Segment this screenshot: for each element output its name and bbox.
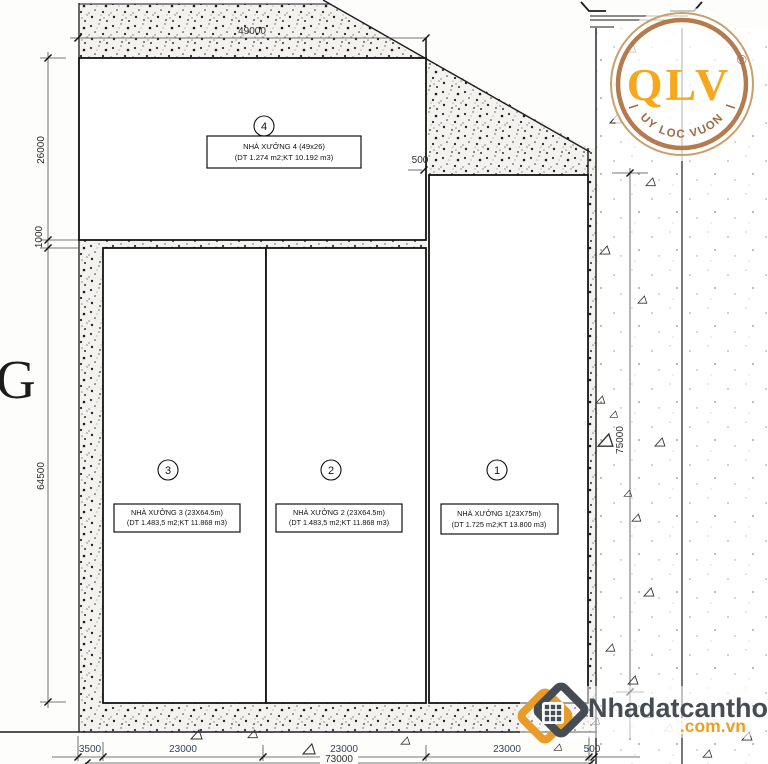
- dim-bottom-23000-c: 23000: [493, 744, 521, 755]
- dim-total-73000: 73000: [325, 754, 353, 764]
- building-4-title: NHÀ XƯỞNG 4 (49x26): [243, 142, 325, 151]
- building-2-title: NHÀ XƯỞNG 2 (23X64.5m): [293, 508, 385, 517]
- building-1-number: 1: [494, 465, 500, 477]
- watermark-domain: .com.vn: [680, 716, 746, 736]
- dim-left-64500: 64500: [36, 462, 47, 490]
- building-3-number: 3: [165, 465, 171, 477]
- qlv-registered-mark: ®: [737, 52, 747, 67]
- qlv-brand-text: QLV: [627, 59, 731, 110]
- dim-right-75000: 75000: [615, 426, 626, 454]
- building-1-details: (DT 1.725 m2;KT 13.800 m3): [452, 520, 547, 529]
- dim-bottom-500: 500: [584, 744, 601, 755]
- watermark-logo: Nhadatcantho .com.vn: [520, 685, 768, 742]
- building-2-outline: [266, 248, 426, 703]
- dim-left-1000: 1000: [34, 225, 45, 248]
- building-3-outline: [103, 248, 266, 703]
- dim-gap-500: 500: [412, 155, 429, 166]
- dim-bottom-3500: 3500: [79, 744, 102, 755]
- diamond-grid-center: [542, 702, 564, 724]
- building-2-details: (DT 1.483,5 m2;KT 11.868 m3): [289, 518, 389, 527]
- building-3-title: NHÀ XƯỞNG 3 (23X64.5m): [131, 508, 223, 517]
- building-1-title: NHÀ XƯỞNG 1(23X75m): [457, 509, 541, 518]
- site-plan-drawing: 49000 26000 1000 64500 75000 500 3500 23…: [0, 0, 768, 764]
- dim-left-26000: 26000: [36, 136, 47, 164]
- building-4-label-box: [207, 136, 361, 168]
- dim-bottom-23000-a: 23000: [169, 744, 197, 755]
- building-3-details: (DT 1.483,5 m2;KT 11.868 m3): [127, 518, 227, 527]
- dim-top: 49000: [238, 26, 266, 37]
- building-2-number: 2: [328, 465, 334, 477]
- building-1-outline: [429, 175, 588, 703]
- building-4-details: (DT 1.274 m2;KT 10.192 m3): [235, 153, 334, 162]
- building-4-number: 4: [261, 121, 267, 133]
- grid-label-g: G: [0, 349, 36, 410]
- site-plan-page: 49000 26000 1000 64500 75000 500 3500 23…: [0, 0, 768, 764]
